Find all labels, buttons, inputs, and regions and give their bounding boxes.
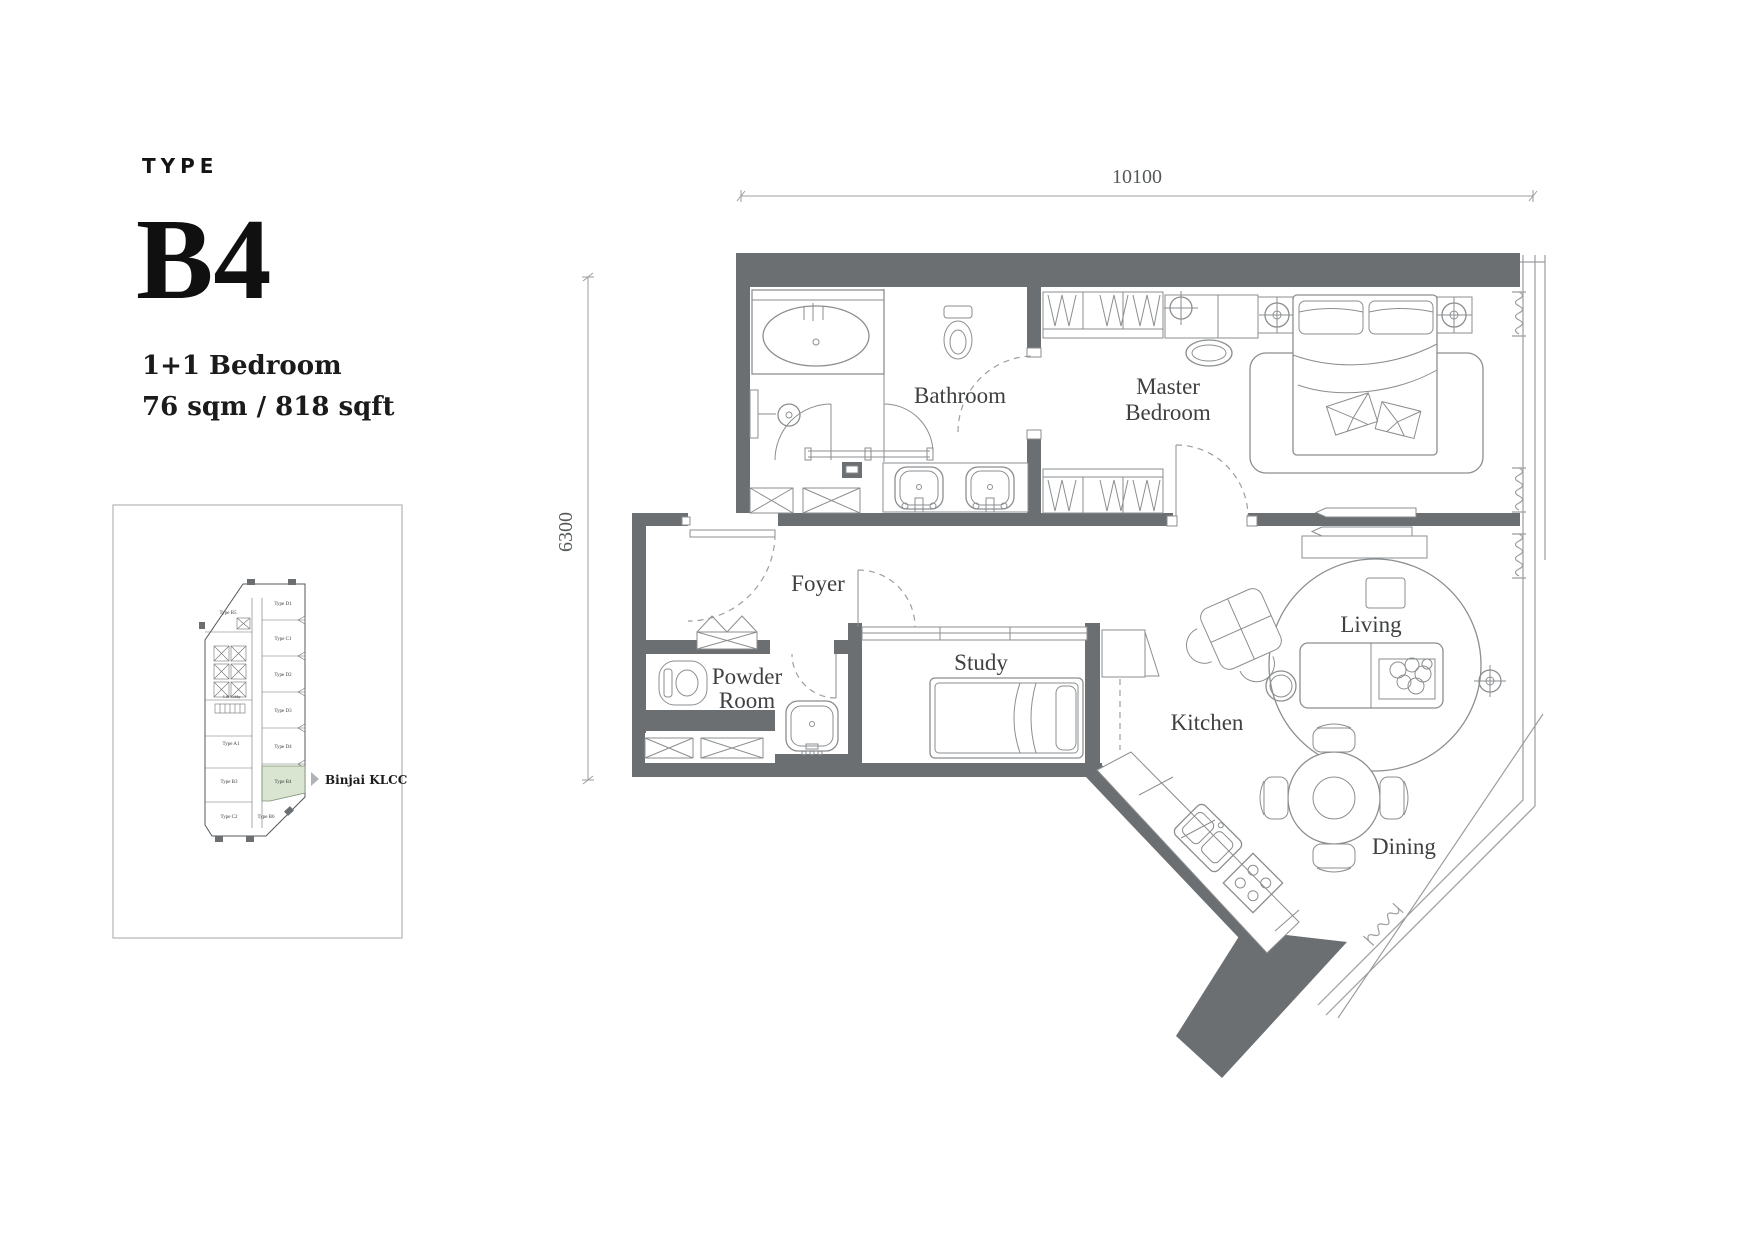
curtain-pelmet-living [1312, 527, 1412, 536]
study-partition [862, 627, 1087, 640]
key-plan: Type B5 Type D1 Type C1 Type D2 Type D3 … [113, 505, 407, 938]
key-plan-unit-c2: Type C2 [220, 815, 238, 820]
wardrobe-bottom-icon [1043, 469, 1163, 513]
bedside-right-icon [1436, 297, 1472, 333]
room-label-living: Living [1340, 612, 1402, 637]
dimension-width-value: 10100 [1112, 166, 1162, 188]
service-ledge-hatch [750, 488, 860, 513]
study-bed-icon [930, 678, 1083, 758]
bathroom: Bathroom [750, 289, 1041, 513]
vanity-basins [883, 463, 1028, 512]
shower-icon [750, 390, 800, 438]
study-door-swing [858, 570, 915, 627]
powder-ledge-hatch [645, 738, 763, 758]
key-plan-unit-b6: Type B6 [257, 815, 275, 820]
key-plan-unit-b4: Type B4 [274, 780, 292, 785]
entrance-door-swing [688, 534, 775, 621]
coffee-table-icon [1366, 578, 1405, 608]
bedroom-config-label: 1+1 Bedroom [142, 351, 342, 381]
room-label-master-1: Master [1136, 374, 1200, 399]
key-plan-unit-b3: Type B3 [220, 780, 238, 785]
unit-type-title: B4 [136, 196, 271, 324]
room-label-study: Study [954, 650, 1008, 675]
curtain-pelmet-master [1316, 508, 1416, 517]
room-label-bathroom: Bathroom [914, 383, 1006, 408]
master-door-swing [1176, 445, 1248, 517]
key-plan-unit-d1: Type D1 [274, 602, 292, 607]
room-label-dining: Dining [1372, 834, 1436, 859]
key-plan-unit-d4: Type D4 [274, 745, 292, 750]
shower-door-icon [775, 404, 933, 460]
key-plan-unit-a1: Type A1 [222, 742, 240, 747]
toilet-icon [944, 306, 972, 359]
study: Study [858, 570, 1087, 758]
sofa-icon [1300, 643, 1443, 708]
floor-lamp-icon [1474, 665, 1506, 697]
entrance-door-leaf [690, 530, 775, 537]
room-label-foyer: Foyer [791, 571, 845, 596]
master-bed-icon [1293, 295, 1437, 455]
room-label-kitchen: Kitchen [1171, 710, 1244, 735]
master-bedroom: Master Bedroom [1043, 291, 1483, 526]
bathtub-surround [752, 290, 884, 374]
floorplan-canvas: TYPE B4 1+1 Bedroom 76 sqm / 818 sqft [0, 0, 1754, 1241]
key-plan-unit-d2: Type D2 [274, 673, 292, 678]
dining-table-icon [1288, 752, 1380, 844]
room-label-master-2: Bedroom [1125, 400, 1211, 425]
dimension-depth-value: 6300 [555, 512, 577, 552]
key-plan-unit-d3: Type D3 [274, 709, 292, 714]
key-plan-core-label: Lift Lobby [223, 694, 240, 699]
wardrobe-top-icon [1043, 292, 1163, 338]
key-plan-unit-c1: Type C1 [274, 637, 292, 642]
dining-area: Dining [1260, 724, 1436, 872]
armchair-icon [1175, 585, 1294, 703]
bedside-left-icon [1258, 297, 1295, 333]
key-plan-frame [113, 505, 402, 938]
tv-console-icon [1302, 536, 1427, 558]
fridge-icon [1102, 630, 1159, 677]
type-eyebrow-label: TYPE [142, 154, 218, 178]
foyer: Foyer [682, 517, 845, 649]
room-label-powder-1: Powder [712, 664, 783, 689]
unit-area-label: 76 sqm / 818 sqft [142, 392, 395, 422]
powder-door-swing [792, 654, 836, 698]
powder-room: Powder Room [645, 654, 838, 758]
dresser-icon [1164, 291, 1258, 366]
shoe-cabinet-icon [697, 616, 757, 649]
room-label-powder-2: Room [719, 688, 775, 713]
key-plan-unit-b5: Type B5 [219, 611, 237, 616]
powder-toilet-icon [659, 661, 707, 705]
dimension-depth: 6300 [555, 273, 594, 784]
powder-basin-icon [786, 701, 838, 755]
dimension-width: 10100 [737, 166, 1537, 202]
title-block: TYPE B4 1+1 Bedroom 76 sqm / 818 sqft [136, 154, 395, 422]
project-name-label: Binjai KLCC [325, 773, 407, 787]
